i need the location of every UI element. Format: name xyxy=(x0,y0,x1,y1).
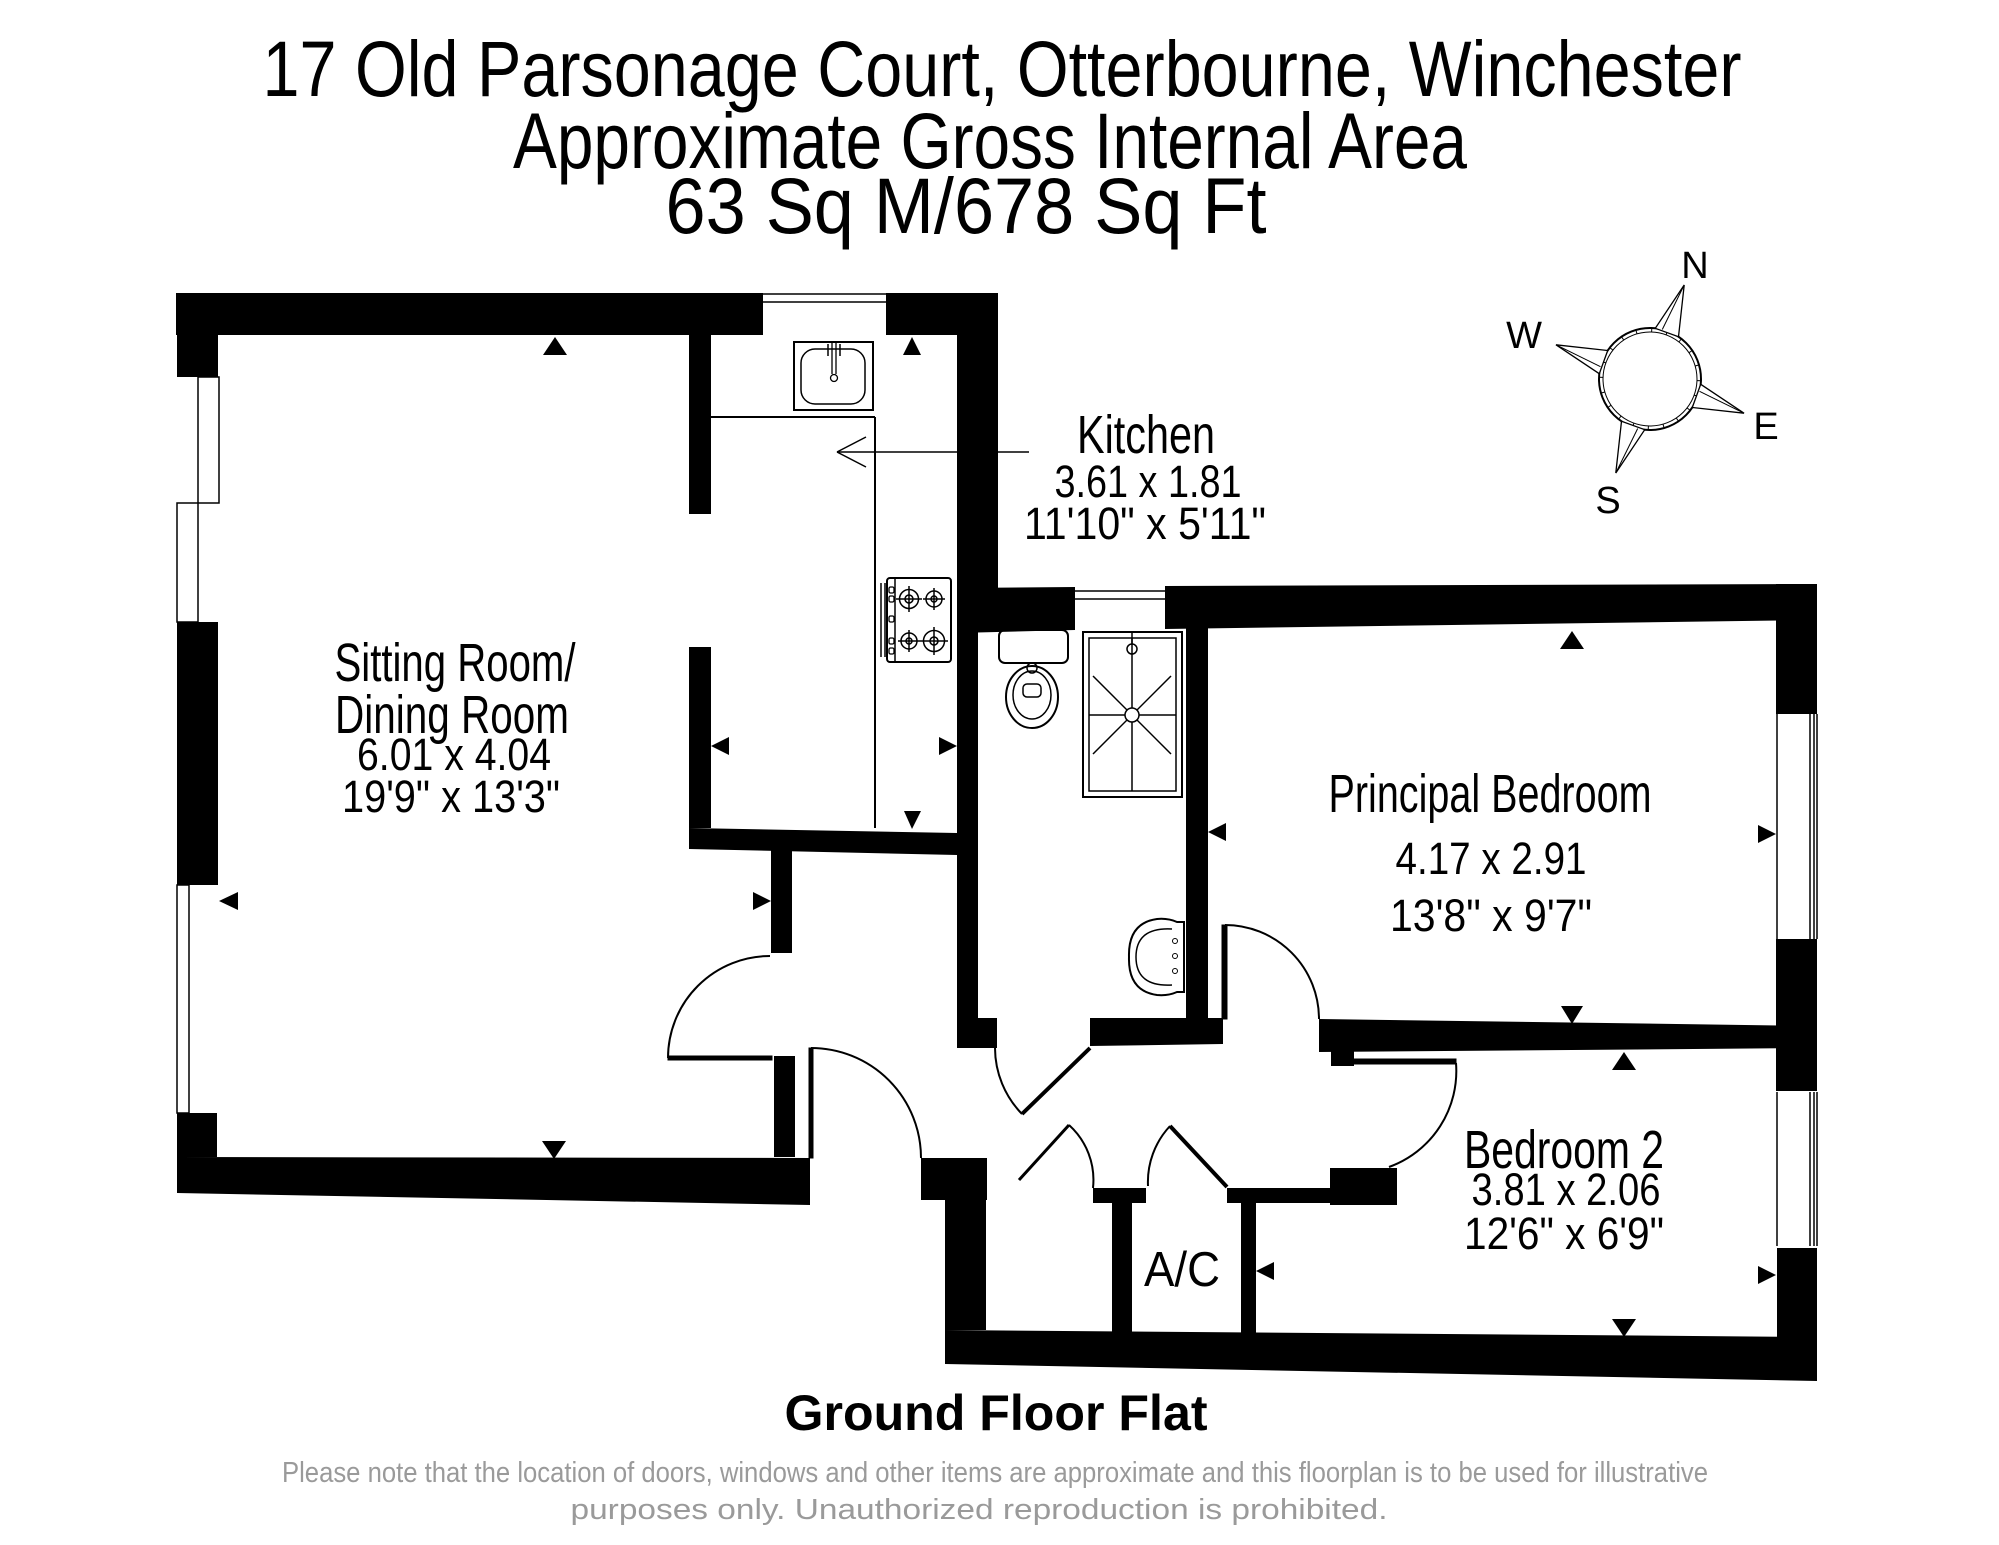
svg-text:19'9" x 13'3": 19'9" x 13'3" xyxy=(342,771,560,822)
svg-text:63 Sq M/678 Sq Ft: 63 Sq M/678 Sq Ft xyxy=(666,161,1267,250)
svg-text:S: S xyxy=(1595,480,1620,522)
svg-text:N: N xyxy=(1681,245,1708,287)
svg-text:4.17 x 2.91: 4.17 x 2.91 xyxy=(1396,833,1587,884)
svg-text:W: W xyxy=(1506,315,1542,357)
svg-text:11'10" x 5'11": 11'10" x 5'11" xyxy=(1024,498,1266,549)
svg-text:E: E xyxy=(1753,406,1778,448)
svg-text:12'6" x 6'9": 12'6" x 6'9" xyxy=(1464,1208,1664,1259)
svg-text:Principal Bedroom: Principal Bedroom xyxy=(1329,764,1652,824)
svg-text:A/C: A/C xyxy=(1144,1243,1220,1297)
svg-text:13'8" x 9'7": 13'8" x 9'7" xyxy=(1390,890,1592,941)
svg-text:Please note that the location: Please note that the location of doors, … xyxy=(282,1457,1708,1489)
svg-text:Sitting Room/: Sitting Room/ xyxy=(335,633,576,693)
svg-text:purposes only. Unauthorized re: purposes only. Unauthorized reproduction… xyxy=(571,1494,1388,1526)
svg-text:Ground Floor Flat: Ground Floor Flat xyxy=(785,1385,1208,1441)
